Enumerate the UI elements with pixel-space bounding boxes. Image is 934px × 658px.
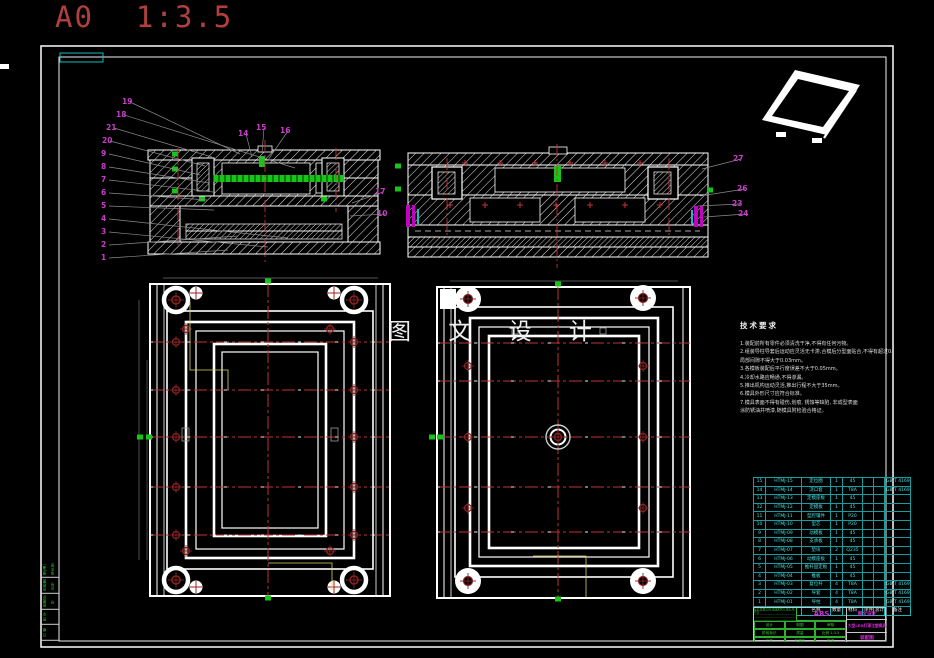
bom-cell: GB/T 4169.4	[885, 598, 911, 607]
bom-cell	[874, 538, 885, 547]
bom-cell: GB/T 4169.19	[885, 486, 911, 495]
bom-cell	[874, 581, 885, 590]
bom-cell	[874, 598, 885, 607]
bom-cell	[885, 529, 911, 538]
bom-cell: HTMJ-10	[766, 520, 802, 529]
bom-cell: HTMJ-14	[766, 486, 802, 495]
bom-cell	[885, 538, 911, 547]
bom-row: 8HTMJ-08支承板145	[754, 538, 911, 547]
title-block: 标记 处数 分区 更改文件号 签名 年月日 ABS 设计制图审核阶段标记质量比例…	[753, 607, 886, 641]
bom-cell	[863, 581, 874, 590]
watermark-text: 图 文 设 计	[388, 312, 607, 346]
bom-cell: 45	[843, 538, 863, 547]
bom-cell: HTMJ-02	[766, 589, 802, 598]
bom-row: 13HTMJ-13定模座板145	[754, 495, 911, 504]
bom-cell: HTMJ-09	[766, 529, 802, 538]
right-section-view	[395, 144, 713, 268]
bom-cell	[863, 538, 874, 547]
bom-cell: 浇口套	[802, 486, 831, 495]
bom-cell	[885, 512, 911, 521]
bom-cell: HTMJ-12	[766, 503, 802, 512]
bom-cell: HTMJ-05	[766, 563, 802, 572]
bom-row: 2HTMJ-02导套4T8AGB/T 4169.3	[754, 589, 911, 598]
bom-cell: 复位杆	[802, 581, 831, 590]
bom-cell: 2	[754, 589, 766, 598]
bom-cell: 45	[843, 478, 863, 487]
signature-cell: 标准化	[785, 637, 816, 642]
bom-cell: 8	[754, 538, 766, 547]
bom-cell	[874, 563, 885, 572]
bom-cell: 1	[831, 512, 843, 521]
isometric-view	[0, 64, 860, 143]
bom-cell: T8A	[843, 598, 863, 607]
signature-cell: 质量	[785, 629, 816, 637]
bom-cell	[874, 503, 885, 512]
bom-table: 15HTMJ-15定位圈145GB/T 4169.1814HTMJ-14浇口套1…	[753, 477, 886, 607]
cad-canvas: A0 1:3.5 图 文 设 计 技术要求 1.装配前所有零件必须清洗干净,不得…	[0, 0, 934, 658]
bom-cell: GB/T 4169.3	[885, 589, 911, 598]
bom-cell	[863, 572, 874, 581]
bom-cell: 45	[843, 555, 863, 564]
bom-cell	[863, 589, 874, 598]
bom-cell: 4	[831, 581, 843, 590]
tech-requirements-title: 技术要求	[740, 320, 892, 331]
margin-label: 借(通)用件登记	[41, 562, 59, 578]
bom-cell	[863, 555, 874, 564]
bom-row: 10HTMJ-10型芯1P20	[754, 520, 911, 529]
bom-cell	[885, 572, 911, 581]
bom-cell	[885, 503, 911, 512]
bom-cell: 定位圈	[802, 478, 831, 487]
bom-cell: GB/T 4169.13	[885, 581, 911, 590]
bom-cell	[863, 546, 874, 555]
bom-row: 5HTMJ-05推杆固定板145	[754, 563, 911, 572]
bom-cell: T8A	[843, 581, 863, 590]
bom-cell	[863, 520, 874, 529]
bom-cell: 3	[754, 581, 766, 590]
bom-cell: GB/T 4169.18	[885, 478, 911, 487]
bom-cell: T8A	[843, 486, 863, 495]
tech-requirement-line: 6.模具外形尺寸应符合标准。	[740, 390, 892, 398]
bom-cell: 45	[843, 572, 863, 581]
bom-cell	[863, 512, 874, 521]
bom-row: 6HTMJ-06动模座板145	[754, 555, 911, 564]
bom-cell	[885, 495, 911, 504]
bom-cell: HTMJ-01	[766, 598, 802, 607]
bom-cell: 6	[754, 555, 766, 564]
bom-cell: 45	[843, 503, 863, 512]
bom-row: 4HTMJ-04推板145	[754, 572, 911, 581]
signature-cell: 审核	[815, 621, 846, 629]
bom-cell: 45	[843, 563, 863, 572]
bom-cell: 14	[754, 486, 766, 495]
bom-cell	[863, 563, 874, 572]
bom-cell: 动模座板	[802, 555, 831, 564]
signature-cell: 设计	[754, 621, 785, 629]
bom-cell	[863, 486, 874, 495]
bom-cell	[874, 555, 885, 564]
bom-cell	[874, 589, 885, 598]
bom-cell: 4	[754, 572, 766, 581]
bom-cell: P20	[843, 520, 863, 529]
bom-cell: 型腔镶件	[802, 512, 831, 521]
tech-requirement-line: 局部间隙不得大于0.03mm。	[740, 357, 892, 365]
bom-cell: 1	[831, 572, 843, 581]
tech-requirements-lines: 1.装配前所有零件必须清洗干净,不得有任何污物。2.组装导柱导套后运动应灵活无卡…	[740, 340, 892, 416]
signature-cell: 批准	[815, 637, 846, 642]
bom-cell: 7	[754, 546, 766, 555]
bom-cell: 45	[843, 529, 863, 538]
bom-cell: 4	[831, 598, 843, 607]
bom-cell: 45	[843, 495, 863, 504]
bom-cell: 导柱	[802, 598, 831, 607]
signature-cell: 阶段标记	[754, 629, 785, 637]
bom-row: 11HTMJ-11型腔镶件1P20	[754, 512, 911, 521]
bom-cell: 支承板	[802, 538, 831, 547]
bom-cell: 1	[754, 598, 766, 607]
bom-cell: 2	[831, 546, 843, 555]
margin-label: 旧底图总号	[41, 578, 59, 594]
bom-cell: 1	[831, 503, 843, 512]
bom-cell	[874, 486, 885, 495]
bom-row: 12HTMJ-12定模板145	[754, 503, 911, 512]
bom-cell	[863, 598, 874, 607]
bom-cell: 推板	[802, 572, 831, 581]
margin-label: 底图总号	[41, 594, 59, 610]
signature-grid: 设计制图审核阶段标记质量比例 1:3.5工艺标准化批准共1张第1张	[754, 621, 846, 642]
bom-cell: 1	[831, 538, 843, 547]
tech-requirement-line: 4.冷却水路应畅通,不得渗漏。	[740, 374, 892, 382]
bom-cell: 5	[754, 563, 766, 572]
bom-cell: T8A	[843, 589, 863, 598]
bom-cell	[885, 555, 911, 564]
bom-cell	[863, 503, 874, 512]
bom-row: 15HTMJ-15定位圈145GB/T 4169.18	[754, 478, 911, 487]
bom-cell	[874, 520, 885, 529]
bom-cell	[863, 529, 874, 538]
bom-cell: HTMJ-06	[766, 555, 802, 564]
bom-cell: 型芯	[802, 520, 831, 529]
bom-cell	[874, 572, 885, 581]
signature-cell: 比例 1:3.5	[815, 629, 846, 637]
bom-cell	[874, 546, 885, 555]
bom-cell: HTMJ-15	[766, 478, 802, 487]
signature-cell: 工艺	[754, 637, 785, 642]
bom-row: 7HTMJ-07垫块2Q235	[754, 546, 911, 555]
bom-cell: 1	[831, 486, 843, 495]
margin-label: 日 期	[41, 625, 59, 641]
corner-tab	[440, 289, 456, 309]
bom-cell: P20	[843, 512, 863, 521]
sheet-label: A0 1:3.5	[55, 0, 233, 34]
title-block-right: 图文设计 大型LED灯罩注塑模具 装配图	[846, 608, 887, 642]
tech-requirement-line: 5.推出机构运动灵活,推出行程不大于35mm。	[740, 382, 892, 390]
bom-cell: 备注	[885, 606, 911, 615]
bom-row: 14HTMJ-14浇口套1T8AGB/T 4169.19	[754, 486, 911, 495]
bom-cell: HTMJ-13	[766, 495, 802, 504]
bom-cell	[874, 478, 885, 487]
bom-cell: 9	[754, 529, 766, 538]
bom-cell: HTMJ-11	[766, 512, 802, 521]
bom-cell: Q235	[843, 546, 863, 555]
bom-cell: 1	[831, 555, 843, 564]
margin-strip: 借(通)用件登记旧底图总号底图总号签 字日 期	[41, 562, 59, 641]
bom-row: 9HTMJ-09动模板145	[754, 529, 911, 538]
tech-requirement-line: 1.装配前所有零件必须清洗干净,不得有任何污物。	[740, 340, 892, 348]
bom-cell: HTMJ-08	[766, 538, 802, 547]
signature-cell: 制图	[785, 621, 816, 629]
bom-cell: 1	[831, 478, 843, 487]
tech-requirements: 技术要求 1.装配前所有零件必须清洗干净,不得有任何污物。2.组装导柱导套后运动…	[740, 320, 892, 416]
sprue-bushing	[549, 147, 567, 154]
drawing-title: 大型LED灯罩注塑模具	[847, 620, 887, 632]
bom-cell: 垫块	[802, 546, 831, 555]
tech-requirement-line: 2.组装导柱导套后运动应灵活无卡滞,合模后分型面贴合,不得有超过0.02的间隙,	[740, 348, 892, 356]
bom-cell: 1	[831, 520, 843, 529]
bom-cell: 11	[754, 512, 766, 521]
bom-cell: 12	[754, 503, 766, 512]
bom-cell: HTMJ-03	[766, 581, 802, 590]
bom-row: 3HTMJ-03复位杆4T8AGB/T 4169.13	[754, 581, 911, 590]
tech-requirement-line: 3.各模板装配后平行度误差不大于0.05mm。	[740, 365, 892, 373]
bom-cell: 动模板	[802, 529, 831, 538]
bom-cell: 定模板	[802, 503, 831, 512]
sheet-format: A0	[55, 0, 94, 34]
sprue-circle	[546, 425, 570, 449]
company-name: 图文设计	[847, 608, 887, 620]
margin-label: 签 字	[41, 609, 59, 625]
bom-cell: HTMJ-04	[766, 572, 802, 581]
bom-cell	[874, 495, 885, 504]
sheet-scale: 1:3.5	[136, 0, 233, 34]
bom-cell: 10	[754, 520, 766, 529]
bom-cell	[874, 512, 885, 521]
bom-cell: 推杆固定板	[802, 563, 831, 572]
drawing-type: 装配图	[847, 633, 887, 642]
tech-requirement-line: 7.模具表面不得有碰伤,划痕, 锈蚀等缺陷, 非成型表面	[740, 399, 892, 407]
bom-cell: 导套	[802, 589, 831, 598]
bom-cell	[885, 520, 911, 529]
tech-requirement-line: 涂防锈油并喷漆,随模具附检验合格证。	[740, 407, 892, 415]
left-plan-view	[137, 278, 390, 601]
bom-cell	[874, 529, 885, 538]
bom-cell: 1	[831, 563, 843, 572]
spring	[213, 175, 343, 182]
bom-cell	[885, 563, 911, 572]
bom-cell	[863, 495, 874, 504]
title-block-revision-row: 标记 处数 分区 更改文件号 签名 年月日	[754, 608, 797, 621]
bom-cell: 15	[754, 478, 766, 487]
bom-cell	[885, 546, 911, 555]
bom-cell: 4	[831, 589, 843, 598]
bom-cell: 1	[831, 529, 843, 538]
material-label: ABS	[797, 608, 846, 621]
bom-cell: 1	[831, 495, 843, 504]
bom-cell: 13	[754, 495, 766, 504]
bom-row: 1HTMJ-01导柱4T8AGB/T 4169.4	[754, 598, 911, 607]
bom-body: 15HTMJ-15定位圈145GB/T 4169.1814HTMJ-14浇口套1…	[754, 478, 911, 616]
bom-cell	[863, 478, 874, 487]
bom-cell: HTMJ-07	[766, 546, 802, 555]
bom-cell: 定模座板	[802, 495, 831, 504]
